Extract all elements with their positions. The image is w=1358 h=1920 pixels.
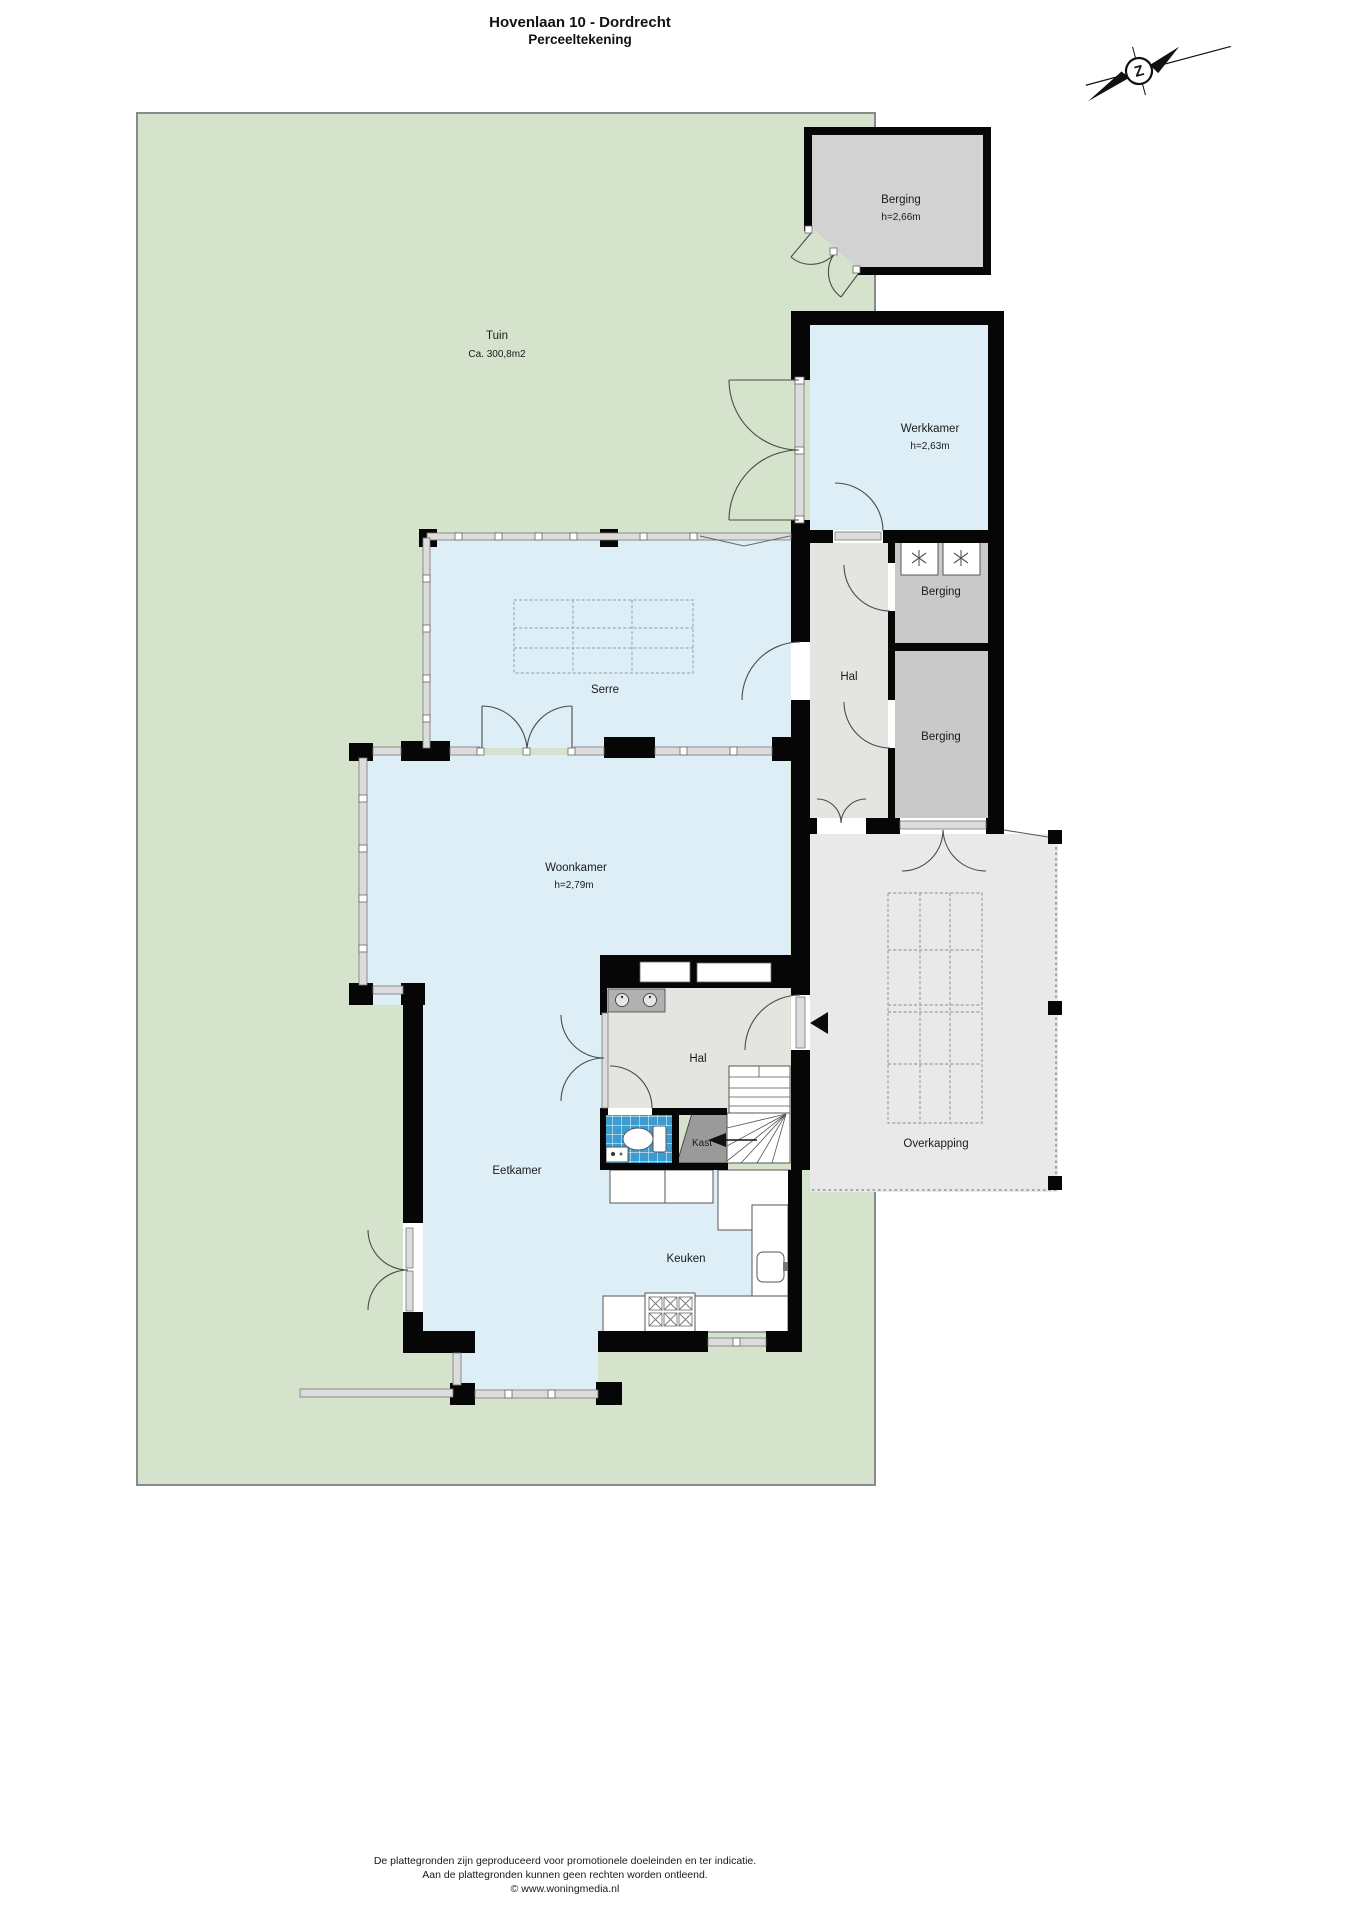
footer-line-1: De plattegronden zijn geproduceerd voor … [0,1854,1130,1868]
room-label-woonkamer: Woonkamer [545,862,607,874]
footer-line-2: Aan de plattegronden kunnen geen rechten… [0,1868,1130,1882]
garden-label: Tuin [486,330,508,342]
compass-icon: Z [1077,22,1237,110]
room-label-serre: Serre [591,684,619,696]
room-label-eetkamer: Eetkamer [492,1165,541,1177]
hall-dresser [608,989,665,1012]
room-height-woonkamer: h=2,79m [554,880,593,891]
room-label-hal-beneden: Hal [689,1053,706,1065]
room-label-keuken: Keuken [666,1253,705,1265]
overkapping-area: Overkapping [810,830,1062,1192]
toilet-room [605,1113,672,1163]
room-label-kast: Kast [692,1138,712,1149]
room-label-shed-berging: Berging [881,194,921,206]
kitchen-sink-icon [757,1252,788,1282]
toilet-sink-icon [606,1147,628,1162]
room-height-werkkamer: h=2,63m [910,441,949,452]
garden-area-label: Ca. 300,8m2 [468,349,526,360]
room-werkkamer [810,325,988,530]
floorplan-page: Hovenlaan 10 - Dordrecht Perceeltekening… [0,0,1358,1920]
room-label-hal-boven: Hal [840,671,857,683]
room-woonkamer [366,755,790,958]
room-label-berging-2: Berging [921,731,961,743]
footer-disclaimer: De plattegronden zijn geproduceerd voor … [0,1854,1130,1896]
room-height-shed-berging: h=2,66m [881,212,920,223]
room-label-werkkamer: Werkkamer [901,423,960,435]
basin-icon [616,994,629,1007]
stove-icon [645,1293,695,1333]
floorplan-drawing: Tuin Ca. 300,8m2 Overkappi [0,0,1358,1920]
room-label-berging-1: Berging [921,586,961,598]
footer-line-3: © www.woningmedia.nl [0,1882,1130,1896]
basin-icon [644,994,657,1007]
toilet-tank-icon [653,1126,666,1152]
room-label-overkapping: Overkapping [903,1138,968,1150]
